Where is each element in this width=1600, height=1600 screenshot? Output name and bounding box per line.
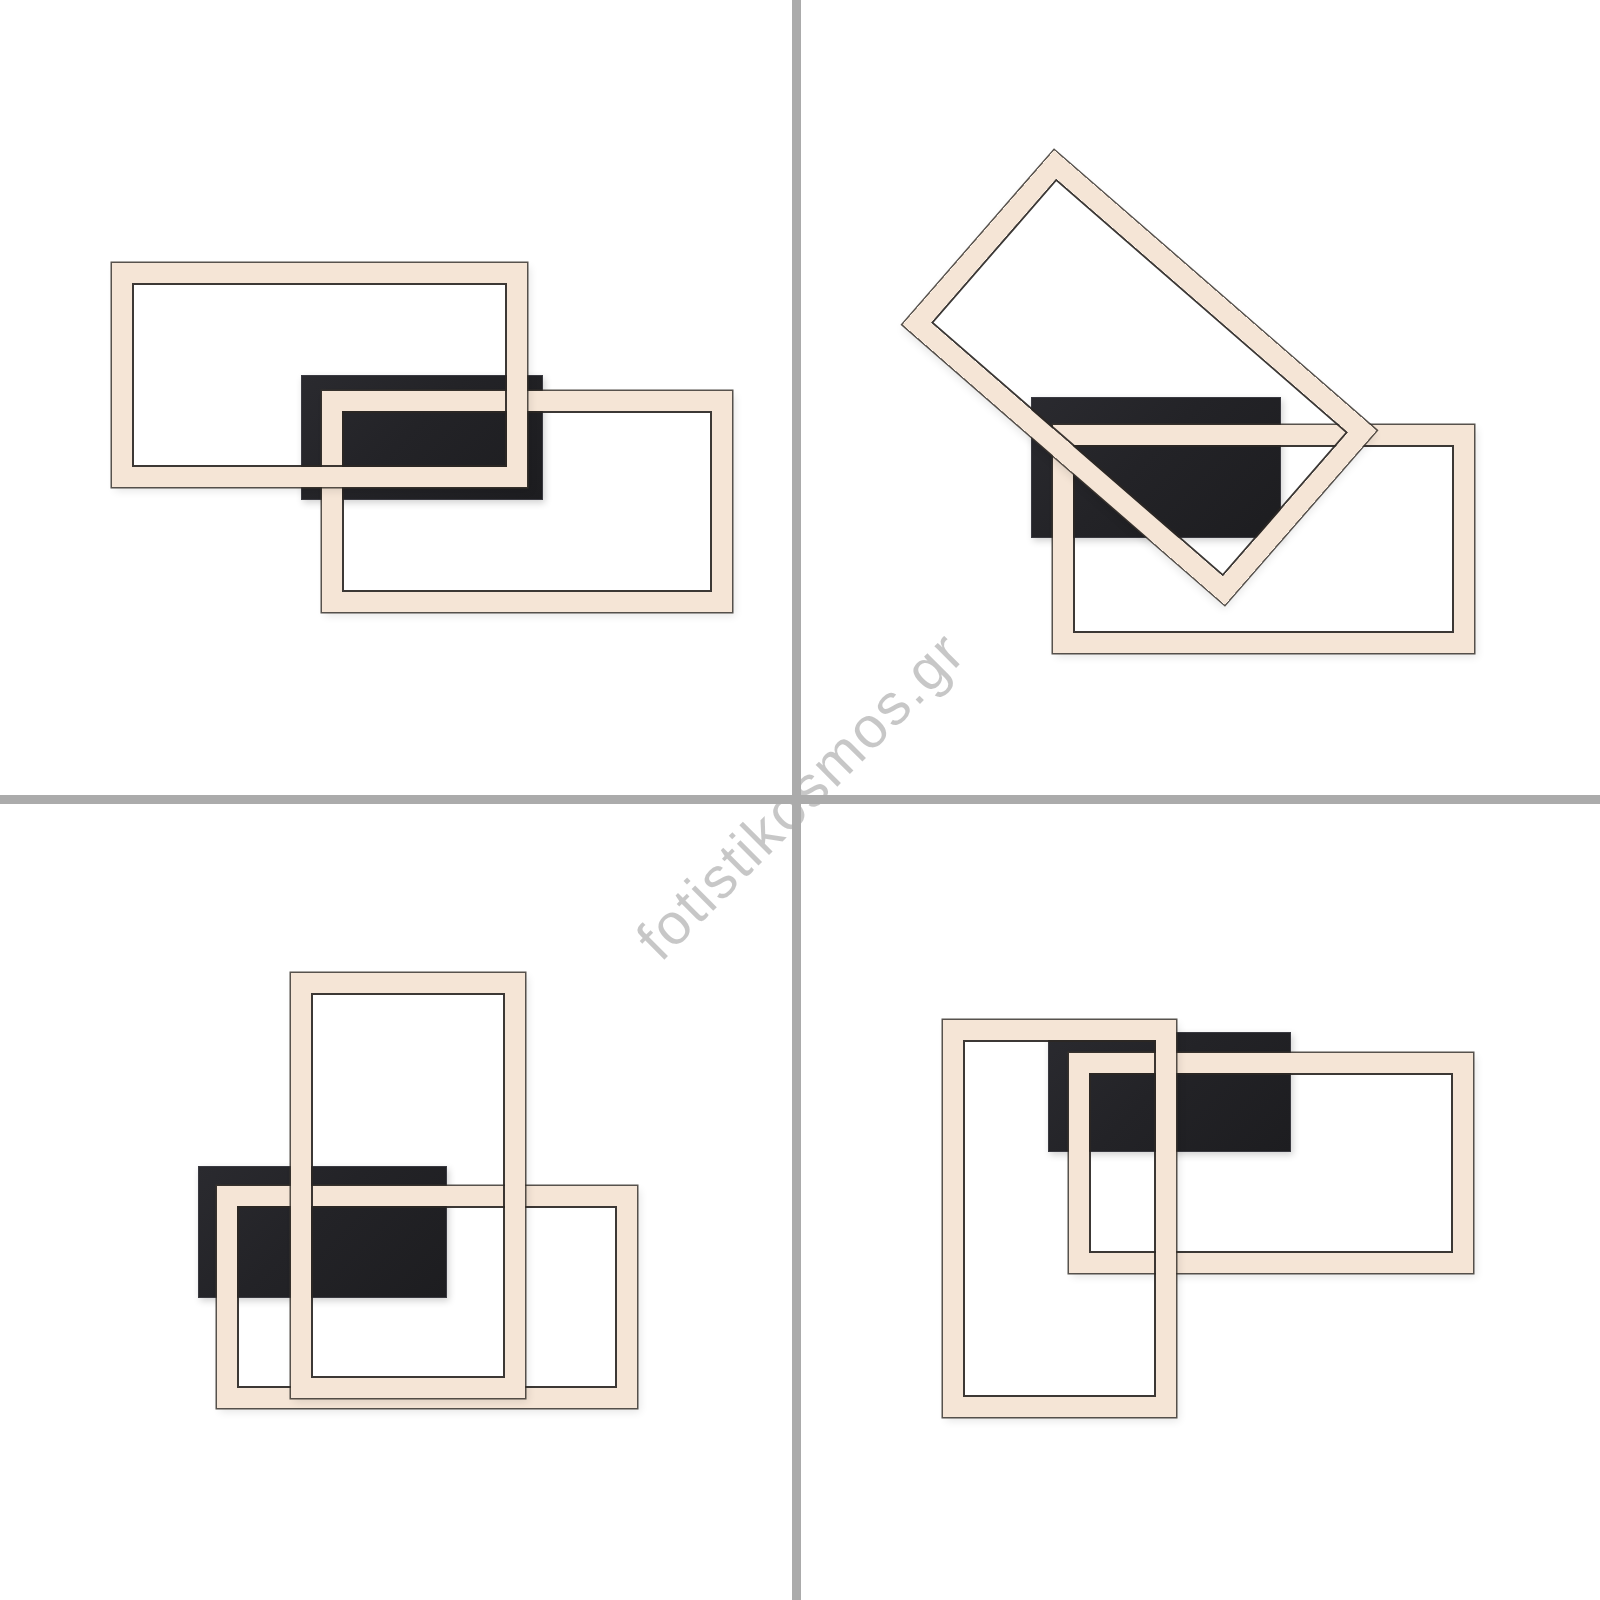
led-frame	[112, 263, 527, 487]
led-frame	[291, 973, 525, 1398]
product-image-grid: fotistikosmos.gr	[0, 0, 1600, 1600]
led-frame	[943, 1020, 1176, 1417]
fixtures-layer	[0, 0, 1600, 1600]
